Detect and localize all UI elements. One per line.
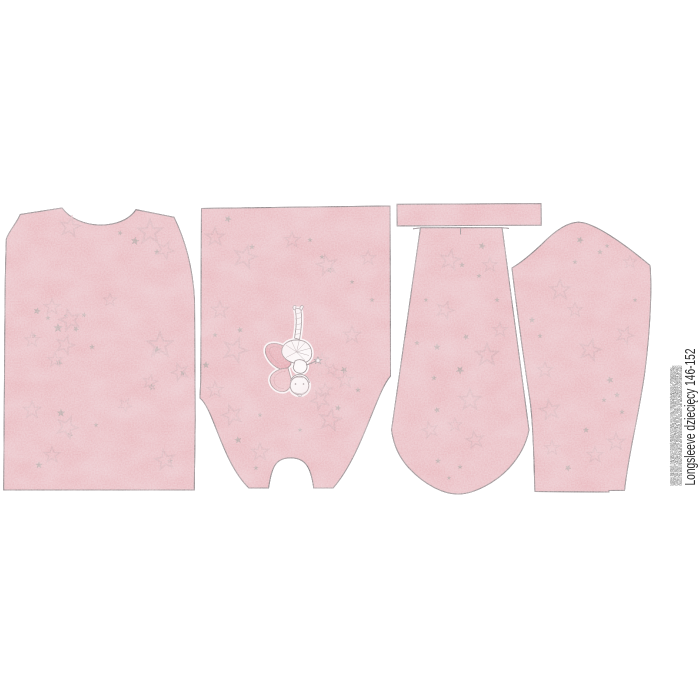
svg-text:Longsleeve dziecięcy 146-152: Longsleeve dziecięcy 146-152 (682, 349, 699, 486)
